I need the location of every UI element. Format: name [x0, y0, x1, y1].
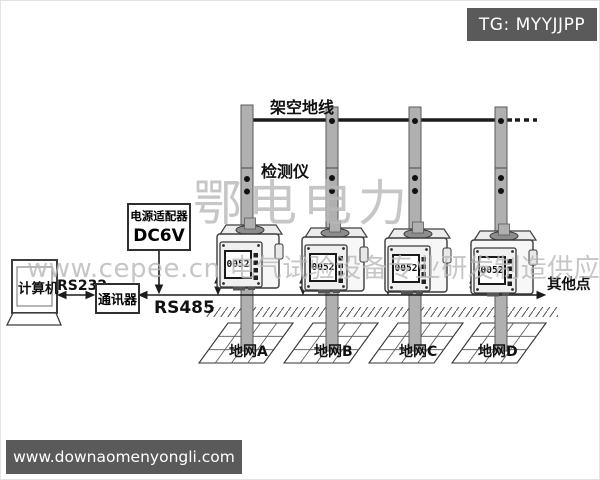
device-display: 0052	[310, 262, 336, 273]
detector-label: 检测仪	[261, 164, 309, 180]
grid-label-d: 地网D	[478, 345, 518, 359]
grid-label-c: 地网C	[399, 345, 437, 359]
device-display: 0052	[479, 265, 505, 276]
communicator-label: 通讯器	[98, 289, 137, 308]
other-points-label: 其他点	[547, 278, 591, 293]
computer-label: 计算机	[18, 283, 59, 297]
device-display: 0052	[393, 263, 419, 274]
power-adapter-box: 电源适配器 DC6V	[127, 203, 191, 251]
device-display: 0052	[225, 259, 251, 270]
power-adapter-voltage: DC6V	[133, 226, 185, 246]
footer-url-banner: www.downaomenyongli.com	[6, 440, 242, 474]
grid-label-b: 地网B	[314, 345, 353, 359]
detector-devices	[217, 218, 537, 297]
tag-badge: TG: MYYJJPP	[467, 8, 597, 41]
power-adapter-name: 电源适配器	[130, 208, 188, 224]
overhead-line-label: 架空地线	[270, 100, 334, 116]
diagram-artwork	[1, 1, 600, 480]
communicator-box: 通讯器	[95, 283, 140, 314]
power-adapter-drop-line	[156, 251, 163, 293]
diagram-canvas: 架空地线 检测仪 电源适配器 DC6V 计算机 RS232 通讯器 RS485 …	[0, 0, 600, 480]
grid-label-a: 地网A	[229, 345, 268, 359]
rs485-label: RS485	[154, 300, 215, 317]
tag-badge-text: TG: MYYJJPP	[479, 15, 585, 35]
footer-url-text: www.downaomenyongli.com	[13, 448, 235, 466]
